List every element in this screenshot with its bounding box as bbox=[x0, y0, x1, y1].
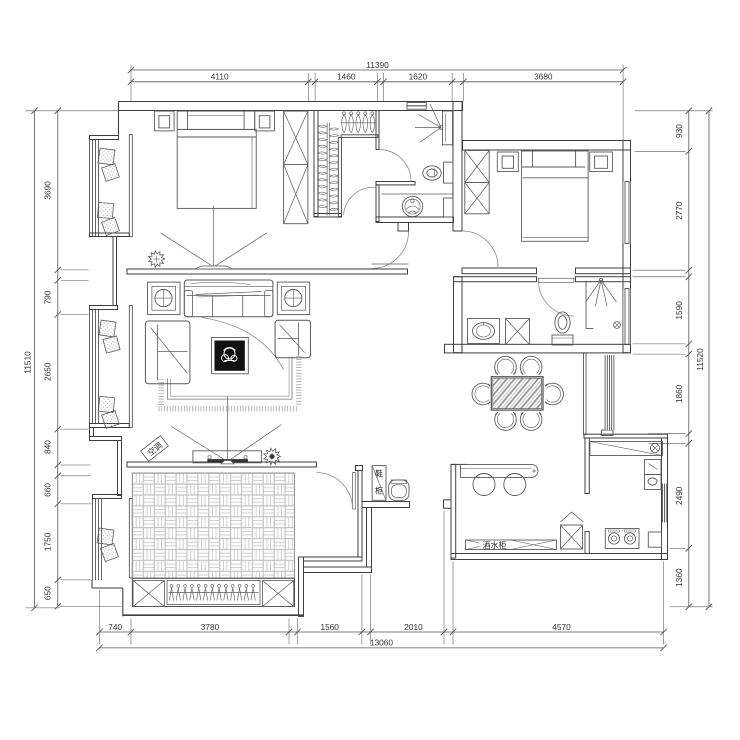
svg-text:3780: 3780 bbox=[201, 622, 220, 632]
svg-text:2490: 2490 bbox=[674, 486, 684, 505]
svg-text:1360: 1360 bbox=[674, 568, 684, 587]
svg-text:3690: 3690 bbox=[43, 181, 53, 200]
svg-text:1620: 1620 bbox=[409, 72, 428, 82]
svg-text:4110: 4110 bbox=[211, 72, 229, 82]
svg-text:3680: 3680 bbox=[534, 72, 553, 82]
svg-text:2650: 2650 bbox=[43, 362, 53, 381]
svg-text:2770: 2770 bbox=[674, 201, 684, 220]
svg-text:790: 790 bbox=[43, 290, 53, 304]
svg-text:650: 650 bbox=[43, 586, 53, 600]
svg-text:1750: 1750 bbox=[43, 532, 53, 551]
svg-text:11390: 11390 bbox=[366, 60, 389, 70]
svg-text:660: 660 bbox=[43, 483, 53, 497]
svg-text:13060: 13060 bbox=[370, 637, 393, 647]
svg-text:1460: 1460 bbox=[337, 72, 356, 82]
svg-text:740: 740 bbox=[108, 622, 122, 632]
svg-text:1590: 1590 bbox=[674, 301, 684, 320]
svg-text:1860: 1860 bbox=[674, 384, 684, 403]
svg-text:11520: 11520 bbox=[695, 348, 705, 371]
svg-text:11510: 11510 bbox=[23, 351, 33, 374]
svg-text:930: 930 bbox=[674, 124, 684, 138]
svg-text:1560: 1560 bbox=[320, 622, 339, 632]
svg-text:柜: 柜 bbox=[375, 486, 383, 496]
svg-text:840: 840 bbox=[43, 440, 53, 454]
svg-text:鞋: 鞋 bbox=[375, 469, 383, 479]
svg-text:2010: 2010 bbox=[404, 622, 423, 632]
svg-text:酒水柜: 酒水柜 bbox=[483, 540, 507, 550]
svg-text:4570: 4570 bbox=[552, 622, 571, 632]
